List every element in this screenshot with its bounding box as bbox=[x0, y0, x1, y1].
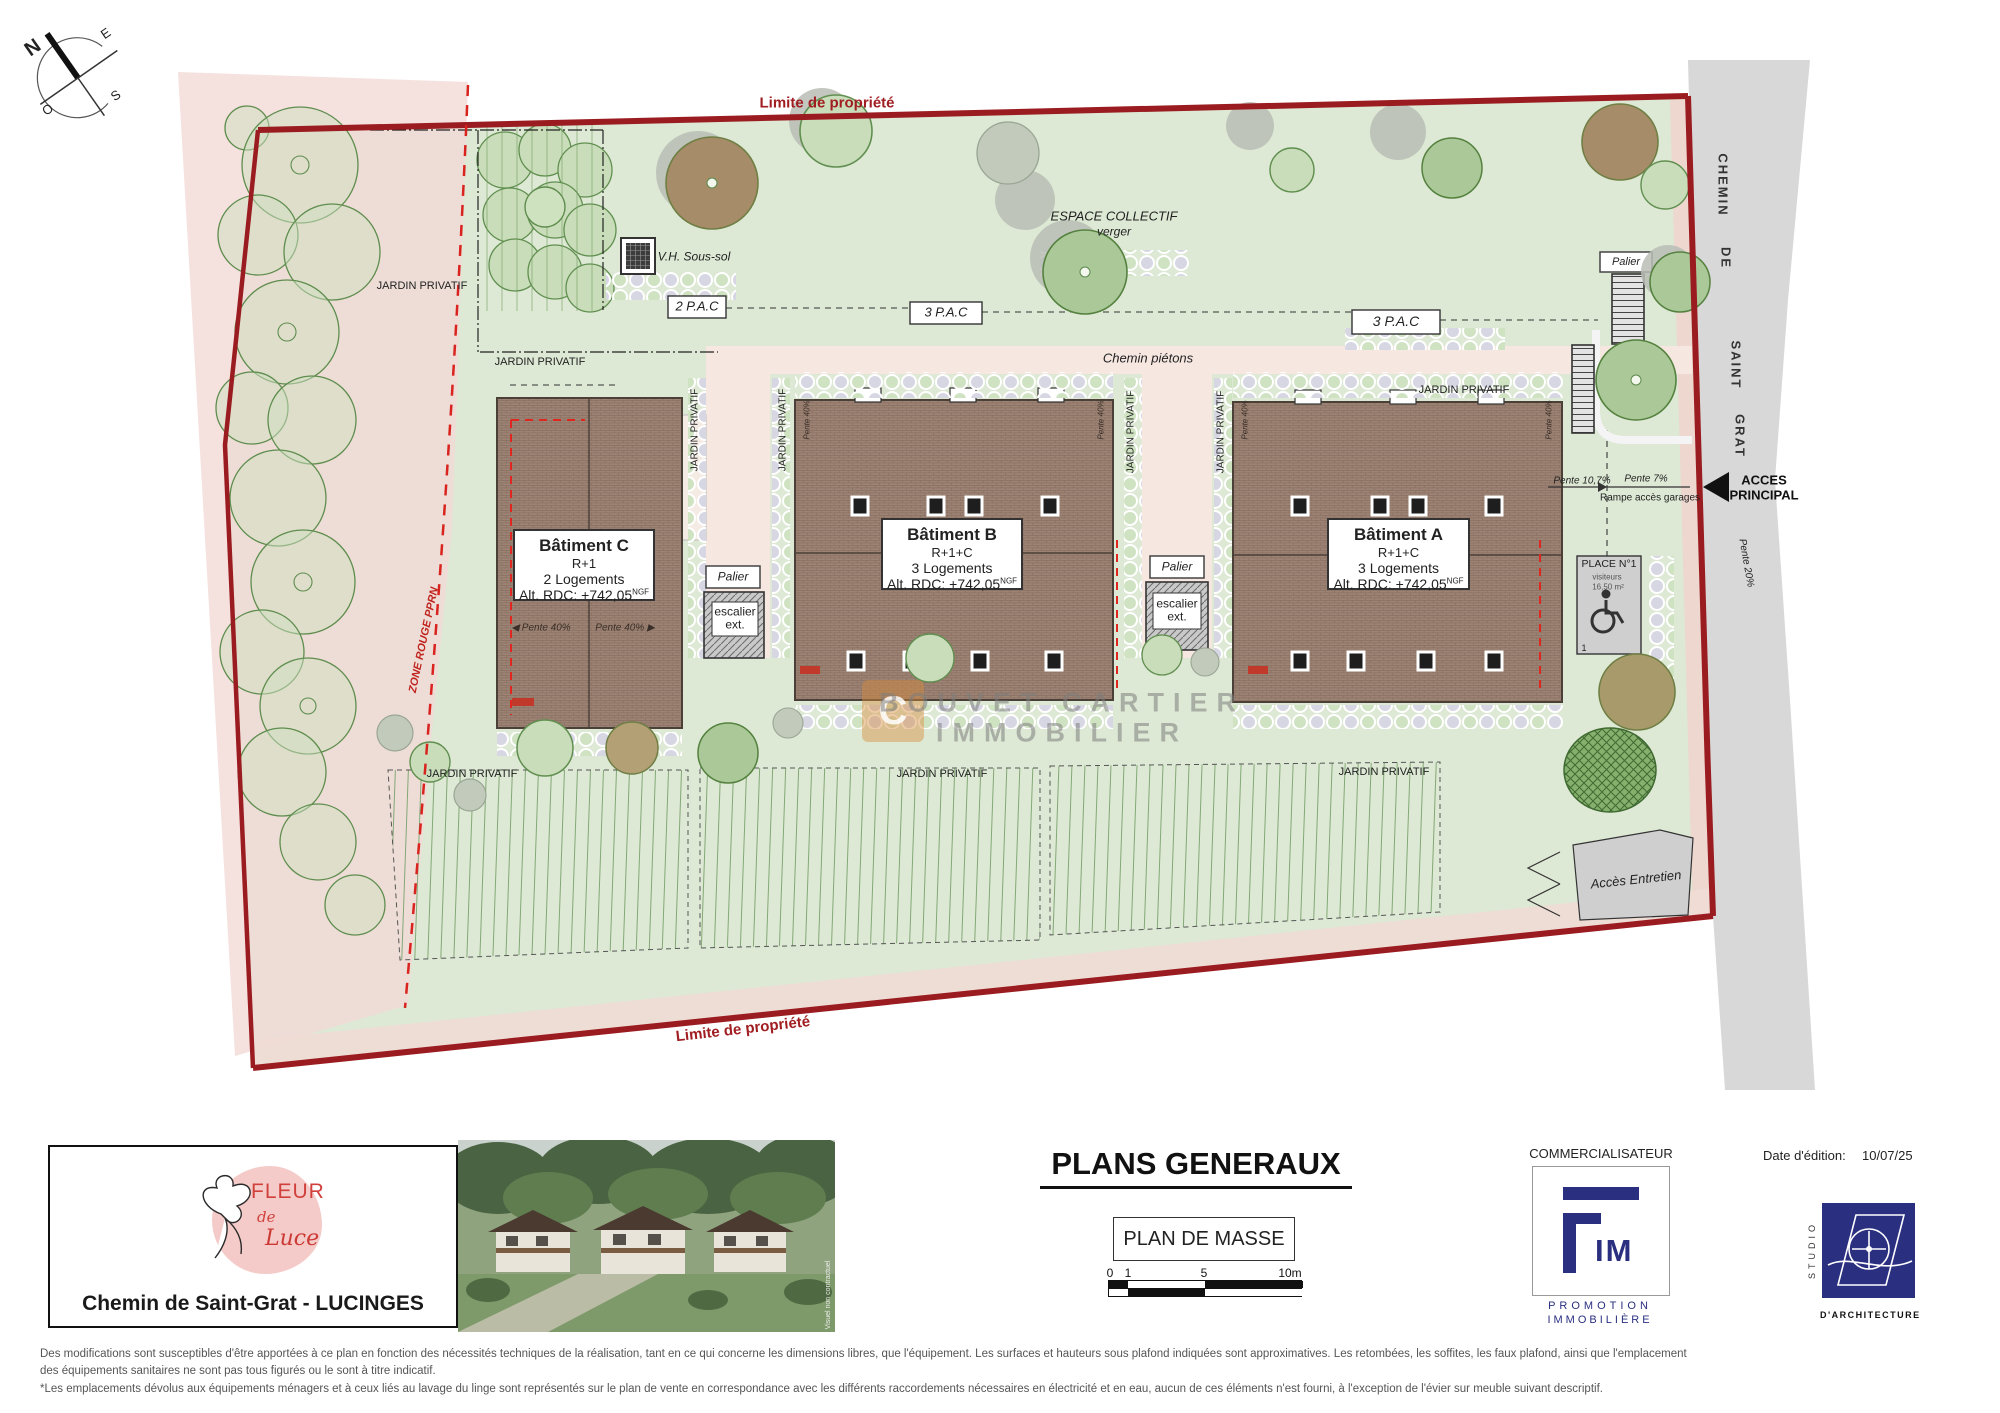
batiment-a-name: Bâtiment A bbox=[1329, 525, 1468, 545]
jardin-privatif-label-nw: JARDIN PRIVATIF bbox=[377, 280, 468, 292]
batiment-b-name: Bâtiment B bbox=[883, 525, 1021, 545]
batiment-a-level: R+1+C bbox=[1329, 545, 1468, 560]
batiment-c-infobox: Bâtiment C R+1 2 Logements Alt. RDC: +74… bbox=[513, 529, 655, 601]
disclaimer-line1: Des modifications sont susceptibles d'êt… bbox=[40, 1346, 1970, 1363]
batiment-c-alt: Alt. RDC: +742,05NGF bbox=[515, 587, 653, 603]
pente40-b-right: Pente 40% bbox=[1098, 400, 1107, 439]
escalier-line1: escalier bbox=[714, 605, 755, 619]
chemin-pietons-label: Chemin piétons bbox=[1103, 352, 1193, 367]
batiment-c-units: 2 Logements bbox=[515, 571, 653, 587]
fleur-de-luce-logo: FLEUR de Luce bbox=[187, 1162, 322, 1282]
palier-label-2: Palier bbox=[1162, 560, 1193, 573]
fim-immobiliere-text: IMMOBILIÈRE bbox=[1530, 1314, 1670, 1326]
site-plan-page: N E S O Limite de propriété Limite de pr… bbox=[0, 0, 2000, 1413]
acces-principal-label: ACCESPRINCIPAL bbox=[1729, 473, 1798, 502]
pac3-label-2: 3 P.A.C bbox=[1373, 314, 1419, 330]
project-address: Chemin de Saint-Grat - LUCINGES bbox=[50, 1292, 456, 1316]
pente-107-label: Pente 10,7% bbox=[1553, 475, 1610, 486]
studio-vertical-text: STUDIO bbox=[1807, 1221, 1817, 1279]
place-n1-visiteurs: visiteurs bbox=[1592, 574, 1621, 583]
scale-bar: 0 1 5 10m bbox=[1108, 1266, 1302, 1297]
watermark-line1: BOUVET CARTIER bbox=[879, 688, 1245, 719]
disclaimer-line3: *Les emplacements dévolus aux équipement… bbox=[40, 1381, 1970, 1398]
jardin-privatif-label-s2: JARDIN PRIVATIF bbox=[897, 768, 988, 780]
jardin-privatif-label-v3: JARDIN PRIVATIF bbox=[1125, 391, 1136, 473]
road-name-chemin: CHEMIN bbox=[1715, 153, 1730, 216]
plan-type-box: PLAN DE MASSE bbox=[1113, 1217, 1295, 1261]
escalier-line2: ext. bbox=[725, 618, 744, 632]
jardin-privatif-label-s1: JARDIN PRIVATIF bbox=[427, 768, 518, 780]
disclaimer-block: Des modifications sont susceptibles d'êt… bbox=[40, 1346, 1970, 1398]
place-n1-area: 16,50 m² bbox=[1592, 584, 1624, 593]
watermark-line2: IMMOBILIER bbox=[936, 718, 1188, 749]
road-name-grat: GRAT bbox=[1732, 414, 1747, 458]
disclaimer-line2: des équipements sanitaires ne sont pas t… bbox=[40, 1363, 1970, 1380]
scale-ticks: 0 1 5 10m bbox=[1108, 1266, 1302, 1280]
jardin-privatif-label-v1: JARDIN PRIVATIF bbox=[689, 389, 700, 471]
scale-bar-row2 bbox=[1108, 1288, 1302, 1297]
commercialisateur-label: COMMERCIALISATEUR bbox=[1528, 1146, 1674, 1161]
project-photo bbox=[458, 1140, 835, 1332]
jardin-privatif-label-v2: JARDIN PRIVATIF bbox=[777, 389, 788, 471]
jardin-privatif-label-e: JARDIN PRIVATIF bbox=[1419, 384, 1510, 396]
scale-tick-10m: 10m bbox=[1278, 1266, 1301, 1280]
date-edition-value: 10/07/25 bbox=[1862, 1148, 1913, 1163]
logo-fleur-text: FLEUR bbox=[251, 1180, 325, 1204]
road-name-saint: SAINT bbox=[1728, 341, 1743, 390]
studio-architecture-text: D'ARCHITECTURE bbox=[1820, 1310, 1920, 1320]
place-n1-number: 1 bbox=[1581, 643, 1586, 653]
place-n1-label: PLACE N°1 bbox=[1582, 559, 1637, 571]
batiment-b-level: R+1+C bbox=[883, 545, 1021, 560]
property-limit-top-label: Limite de propriété bbox=[759, 96, 894, 113]
sheet-title: PLANS GENERAUX bbox=[1040, 1146, 1352, 1189]
batiment-b-units: 3 Logements bbox=[883, 560, 1021, 576]
plan-type-label: PLAN DE MASSE bbox=[1123, 1228, 1284, 1251]
palier-label-3: Palier bbox=[1612, 256, 1640, 268]
espace-collectif-label: ESPACE COLLECTIF bbox=[1051, 210, 1178, 225]
batiment-a-infobox: Bâtiment A R+1+C 3 Logements Alt. RDC: +… bbox=[1327, 518, 1470, 590]
vh-sous-sol-label: V.H. Sous-sol bbox=[658, 250, 730, 263]
scale-tick-0: 0 bbox=[1107, 1266, 1114, 1280]
batiment-a-alt: Alt. RDC: +742,05NGF bbox=[1329, 576, 1468, 592]
photo-disclaimer-note: Visuel non contractuel bbox=[825, 1261, 833, 1330]
fim-promotion-text: PROMOTION bbox=[1530, 1300, 1670, 1312]
jardin-privatif-label-w: JARDIN PRIVATIF bbox=[495, 356, 586, 368]
pente-arrow-right-icon: ▶ bbox=[647, 622, 655, 633]
pac3-label-1: 3 P.A.C bbox=[924, 306, 967, 321]
batiment-a-units: 3 Logements bbox=[1329, 560, 1468, 576]
fim-logo: IM bbox=[1532, 1166, 1670, 1296]
escalier-ext-label-2: escalierext. bbox=[1156, 598, 1197, 625]
scale-bar-row1 bbox=[1108, 1280, 1302, 1288]
scale-tick-1: 1 bbox=[1125, 1266, 1132, 1280]
pente40-c-left: ◀ Pente 40% bbox=[511, 622, 570, 633]
scale-tick-5: 5 bbox=[1201, 1266, 1208, 1280]
project-card: FLEUR de Luce Chemin de Saint-Grat - LUC… bbox=[48, 1145, 458, 1328]
espace-collectif-sub: verger bbox=[1097, 225, 1131, 238]
escalier-ext-label-1: escalierext. bbox=[714, 606, 755, 633]
pente40-a-right: Pente 40% bbox=[1546, 400, 1555, 439]
pente40-a-left: Pente 40% bbox=[1242, 400, 1251, 439]
studio-architecture-logo bbox=[1822, 1203, 1915, 1298]
palier-label-1: Palier bbox=[718, 570, 749, 583]
batiment-b-infobox: Bâtiment B R+1+C 3 Logements Alt. RDC: +… bbox=[881, 518, 1023, 590]
pac2-label: 2 P.A.C bbox=[675, 300, 718, 315]
pente-arrow-left-icon: ◀ bbox=[511, 622, 519, 633]
fim-logo-letters: IM bbox=[1595, 1233, 1633, 1269]
logo-de-text: de bbox=[257, 1208, 275, 1226]
road-name-de: DE bbox=[1718, 247, 1733, 269]
jardin-privatif-label-s3: JARDIN PRIVATIF bbox=[1339, 766, 1430, 778]
batiment-c-level: R+1 bbox=[515, 556, 653, 571]
logo-luce-text: Luce bbox=[265, 1226, 319, 1251]
date-edition-label: Date d'édition: bbox=[1763, 1148, 1846, 1163]
pente40-c-right: Pente 40% ▶ bbox=[595, 622, 654, 633]
batiment-b-alt: Alt. RDC: +742,05NGF bbox=[883, 576, 1021, 592]
pente40-b-left: Pente 40% bbox=[804, 400, 813, 439]
pente-7-label: Pente 7% bbox=[1624, 473, 1667, 484]
jardin-privatif-label-v4: JARDIN PRIVATIF bbox=[1215, 391, 1226, 473]
batiment-c-name: Bâtiment C bbox=[515, 536, 653, 556]
rampe-garages-label: Rampe accès garages bbox=[1600, 492, 1700, 503]
